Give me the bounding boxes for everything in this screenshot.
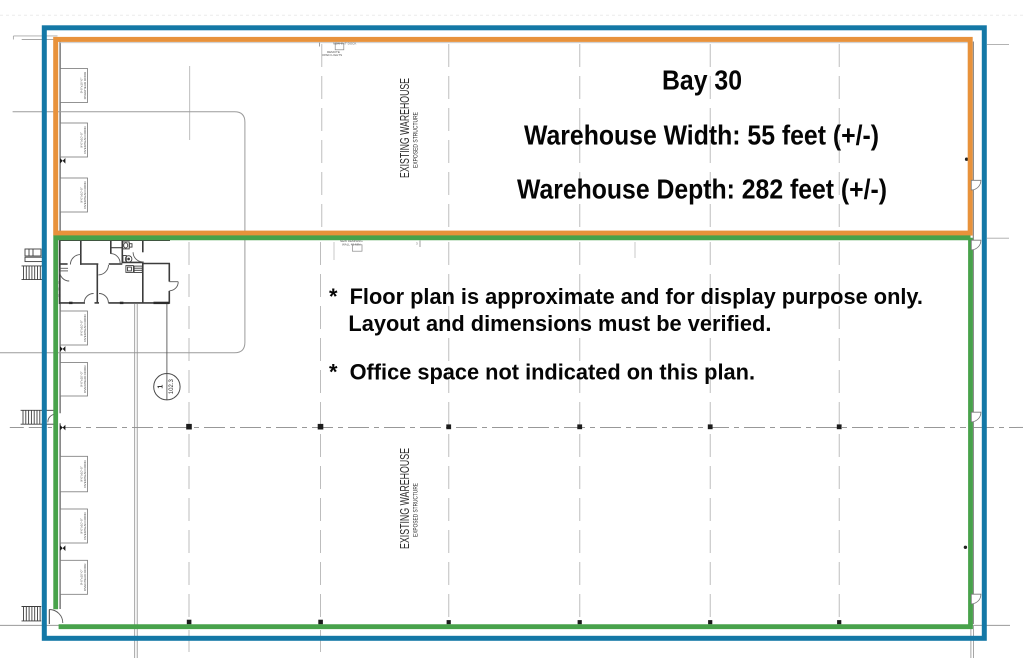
svg-text:3: 3 bbox=[416, 242, 418, 246]
svg-text:EXPOSED STRUCTURE: EXPOSED STRUCTURE bbox=[413, 483, 420, 537]
svg-text:OVERHEAD DOOR: OVERHEAD DOOR bbox=[83, 459, 87, 487]
svg-text:OVERHEAD DOOR: OVERHEAD DOOR bbox=[83, 365, 87, 393]
svg-text:EXISTING WAREHOUSE: EXISTING WAREHOUSE bbox=[397, 78, 412, 178]
svg-text:WALL 45 MIN: WALL 45 MIN bbox=[342, 242, 360, 246]
svg-text:Warehouse Depth: 282 feet (+/-: Warehouse Depth: 282 feet (+/-) bbox=[517, 173, 887, 204]
svg-text:OVERHEAD DOOR: OVERHEAD DOOR bbox=[83, 563, 87, 591]
svg-text:OVERHEAD DOOR: OVERHEAD DOOR bbox=[83, 511, 87, 539]
svg-text:102.3: 102.3 bbox=[169, 379, 175, 395]
svg-text:Warehouse Width: 55 feet (+/-): Warehouse Width: 55 feet (+/-) bbox=[524, 119, 879, 150]
svg-text:OVERHEAD DOOR: OVERHEAD DOOR bbox=[83, 71, 87, 99]
svg-text:EXISTING WAREHOUSE: EXISTING WAREHOUSE bbox=[397, 448, 412, 549]
svg-text:* Floor plan is approximate a: * Floor plan is approximate and for disp… bbox=[329, 284, 923, 309]
svg-text:OVERHEAD DOOR: OVERHEAD DOOR bbox=[83, 180, 87, 208]
svg-text:Layout and dimensions must be: Layout and dimensions must be verified. bbox=[348, 311, 771, 336]
svg-text:EXPOSED STRUCTURE: EXPOSED STRUCTURE bbox=[413, 112, 420, 168]
svg-text:OVERHEAD DOOR: OVERHEAD DOOR bbox=[83, 125, 87, 153]
svg-text:Bay 30: Bay 30 bbox=[662, 65, 742, 96]
svg-text:1: 1 bbox=[158, 385, 165, 389]
svg-text:* Office space not indicated: * Office space not indicated on this pla… bbox=[329, 360, 755, 385]
svg-text:OPEN LIGHTS: OPEN LIGHTS bbox=[322, 53, 342, 57]
svg-text:OVERHEAD DOOR: OVERHEAD DOOR bbox=[83, 313, 87, 341]
